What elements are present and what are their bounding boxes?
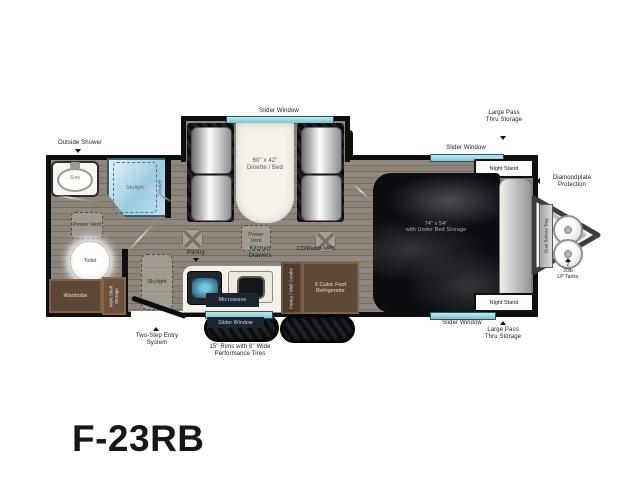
lp-tank-valve-icon — [564, 226, 572, 234]
bed-label: 74" x 54" with Under Bed Storage — [385, 221, 487, 234]
entry-label: Two-Step Entry System — [125, 333, 189, 347]
dinette-cushion — [301, 127, 342, 174]
outside-shower-arrow-icon — [75, 149, 81, 153]
entry-arrow-icon — [153, 327, 159, 331]
bath-power-vent-label: Power Vent — [73, 222, 101, 228]
tires-label: 15" Rims with 8" Wide Performance Tires — [207, 344, 273, 358]
bedroom-top-window-label: Slider Window — [432, 145, 500, 152]
microwave-label: Microwave — [206, 293, 259, 307]
pass-thru-bottom-label: Large Pass Thru Storage — [481, 327, 525, 341]
kitchen-slider-window-label: Slider Window — [207, 317, 264, 328]
lp-tanks-label: LP Tanks — [548, 275, 588, 281]
refrigerator-label: 5 Cubic Foot Refrigerator — [310, 282, 352, 295]
bath-wall — [165, 155, 171, 218]
toilet-label: Toilet — [84, 258, 97, 264]
pantry-label: Pantry — [182, 250, 210, 257]
dinette-table — [236, 123, 294, 223]
wardrobe: Wardrobe — [49, 279, 102, 313]
wardrobe-label: Wardrobe — [64, 293, 88, 299]
tire — [280, 315, 355, 343]
diamondplate-arrow-icon — [536, 178, 540, 184]
dinette-cushion — [301, 175, 342, 221]
bedroom-bottom-slider-window — [430, 312, 496, 320]
diamondplate-label: Diamondplate Protection — [543, 175, 601, 189]
pass-thru-top-label: Large Pass Thru Storage — [482, 110, 526, 124]
dinette-slider-window-label: Slider Window — [251, 108, 307, 115]
dinette-cushion — [191, 175, 232, 221]
outside-shower-label: Outside Shower — [53, 140, 107, 147]
multi-shelf-storage: Multi Shelf Storage — [102, 277, 126, 315]
sink-label: Sink — [57, 176, 93, 182]
shower-skylight-label: Skylight — [126, 185, 144, 191]
pantry-wall-combo: Pantry / Wall Combo — [281, 262, 302, 314]
dinette-size: 60" x 42" — [238, 158, 292, 165]
cd-radio-label: CD/Radio-MP3 — [284, 246, 348, 252]
battery-tray: Dual Battery Tray — [539, 204, 553, 268]
floorplan: Slider Window 60" x 42" Dinette / Bed Ou… — [0, 0, 640, 480]
dinette-label: 60" x 42" Dinette / Bed — [238, 158, 292, 172]
kitchen-slider-window-text: Slider Window — [218, 320, 253, 326]
refrigerator: 5 Cubic Foot Refrigerator — [302, 262, 359, 314]
pass-thru-bottom-arrow-icon — [500, 321, 506, 325]
bath-power-vent: Power Vent — [71, 212, 103, 239]
model-name: F-23RB — [72, 418, 205, 460]
kitchen-drawers-label: Kitchen Drawers — [238, 246, 282, 260]
night-stand-label: Night Stand — [490, 166, 519, 172]
microwave-label-text: Microwave — [218, 297, 246, 303]
dinette-cushion — [191, 127, 232, 174]
lp-tank-valve-icon — [564, 250, 572, 258]
dinette-type: Dinette / Bed — [238, 165, 292, 172]
pantry-arrow-icon — [193, 258, 199, 262]
battery-tray-label: Dual Battery Tray — [544, 219, 549, 254]
bed-storage: with Under Bed Storage — [385, 227, 487, 233]
slideout-latch — [345, 130, 353, 160]
galley-skylight-label: Skylight — [147, 279, 166, 285]
night-stand-bottom: Night Stand — [474, 293, 534, 312]
galley-power-vent-label: Power Vent — [242, 232, 270, 245]
toilet: Toilet — [70, 241, 110, 281]
bed-pillow — [499, 178, 532, 309]
multi-shelf-label: Multi Shelf Storage — [109, 279, 120, 313]
night-stand-label: Night Stand — [490, 300, 519, 306]
pass-thru-top-arrow-icon — [500, 136, 506, 140]
bed — [373, 173, 500, 313]
pantry-wall-combo-label: Pantry / Wall Combo — [289, 267, 295, 308]
